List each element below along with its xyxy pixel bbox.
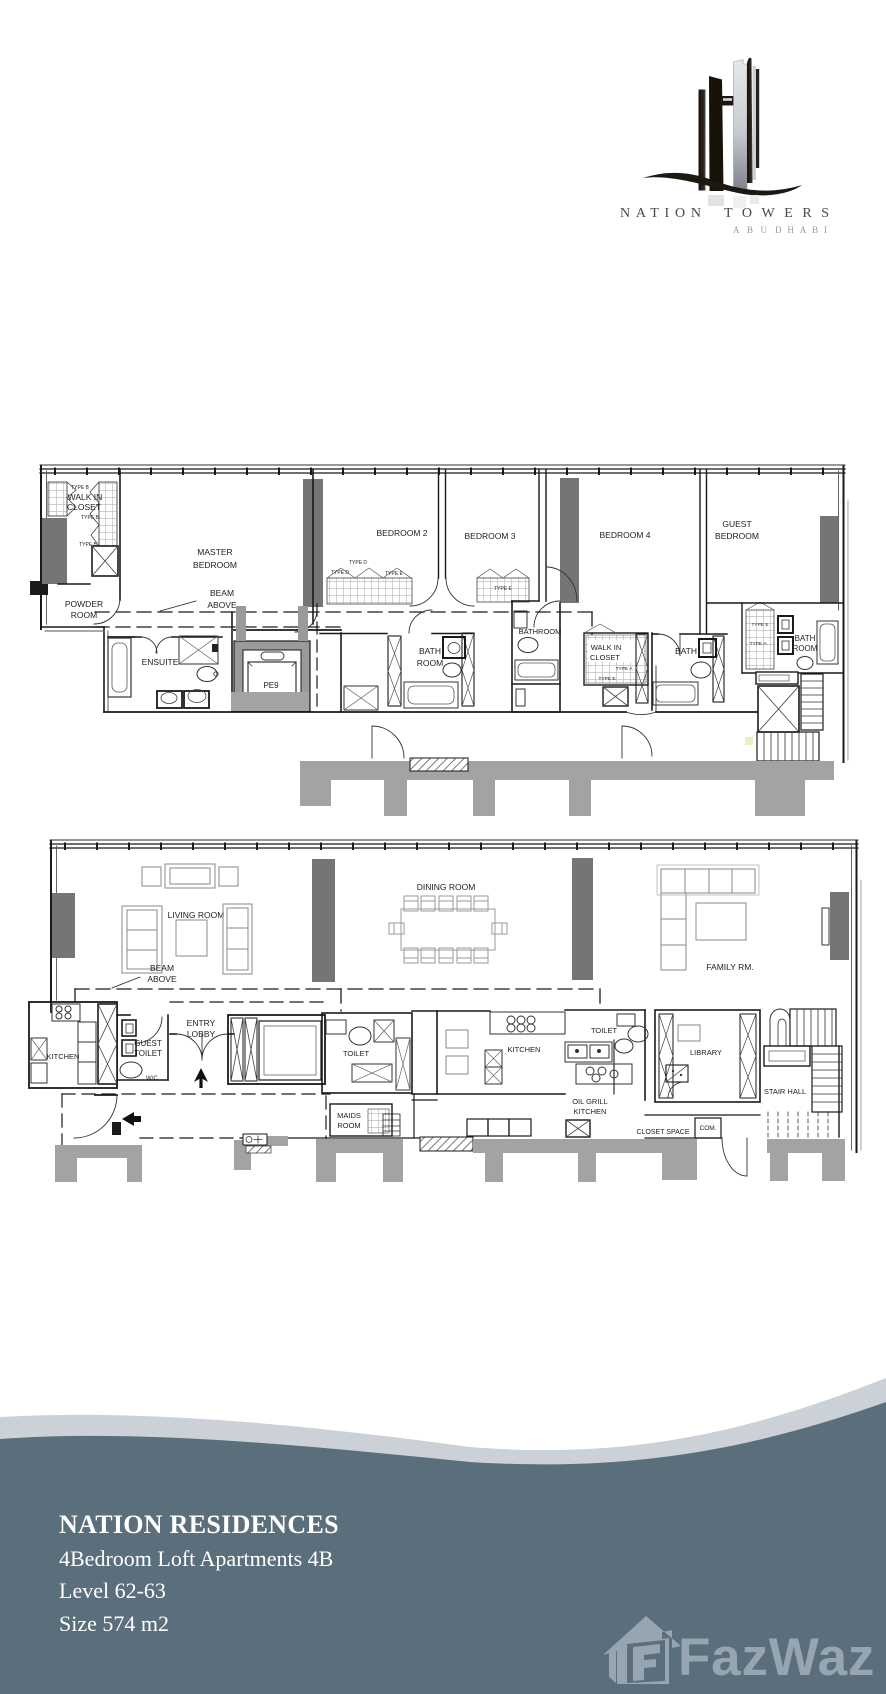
svg-text:KITCHEN: KITCHEN bbox=[508, 1045, 541, 1054]
svg-text:TYPE E: TYPE E bbox=[494, 586, 512, 592]
svg-text:ENTRY: ENTRY bbox=[187, 1018, 216, 1028]
svg-text:WALK IN: WALK IN bbox=[591, 643, 622, 652]
svg-text:ROOM: ROOM bbox=[793, 644, 818, 653]
svg-text:TOILET: TOILET bbox=[591, 1026, 618, 1035]
svg-text:BEAM: BEAM bbox=[210, 588, 234, 598]
svg-text:OIL GRILL: OIL GRILL bbox=[572, 1097, 608, 1106]
svg-text:CLOSET: CLOSET bbox=[590, 653, 620, 662]
svg-text:LOBBY: LOBBY bbox=[187, 1029, 216, 1039]
svg-text:TYPE D: TYPE D bbox=[349, 560, 367, 566]
svg-text:4Bedroom Loft Apartments 4B: 4Bedroom Loft Apartments 4B bbox=[59, 1546, 333, 1571]
svg-text:BEDROOM: BEDROOM bbox=[715, 531, 759, 541]
svg-text:KITCHEN: KITCHEN bbox=[47, 1052, 80, 1061]
svg-text:BEDROOM 4: BEDROOM 4 bbox=[599, 530, 650, 540]
svg-text:TOILET: TOILET bbox=[343, 1049, 370, 1058]
svg-text:KITCHEN: KITCHEN bbox=[574, 1107, 607, 1116]
svg-text:MAIDS: MAIDS bbox=[337, 1111, 361, 1120]
svg-text:TYPE E: TYPE E bbox=[385, 571, 403, 577]
svg-text:BEDROOM 2: BEDROOM 2 bbox=[376, 528, 427, 538]
svg-text:NATION RESIDENCES: NATION RESIDENCES bbox=[59, 1510, 339, 1539]
svg-text:TYPE A: TYPE A bbox=[616, 666, 634, 672]
svg-text:FAMILY RM.: FAMILY RM. bbox=[706, 962, 753, 972]
svg-text:DINING ROOM: DINING ROOM bbox=[417, 882, 476, 892]
svg-text:BEDROOM 3: BEDROOM 3 bbox=[464, 531, 515, 541]
svg-text:ABU: ABU bbox=[733, 225, 768, 235]
svg-text:ROOM: ROOM bbox=[71, 610, 97, 620]
svg-text:COM.: COM. bbox=[700, 1125, 717, 1132]
svg-text:LIVING ROOM: LIVING ROOM bbox=[168, 910, 225, 920]
svg-text:BATH: BATH bbox=[795, 634, 816, 643]
svg-text:TOILET: TOILET bbox=[134, 1049, 162, 1058]
svg-text:STAIR HALL: STAIR HALL bbox=[764, 1087, 806, 1096]
svg-text:GUEST: GUEST bbox=[722, 519, 751, 529]
svg-text:BEAM: BEAM bbox=[150, 963, 174, 973]
svg-text:TYPE E: TYPE E bbox=[598, 676, 615, 682]
svg-text:BATH: BATH bbox=[675, 646, 697, 656]
svg-text:W/C: W/C bbox=[146, 1076, 158, 1082]
svg-text:ABOVE: ABOVE bbox=[207, 600, 237, 610]
svg-text:Size 574 m2: Size 574 m2 bbox=[59, 1611, 169, 1636]
svg-text:ROOM: ROOM bbox=[337, 1121, 360, 1130]
svg-text:BATH: BATH bbox=[419, 646, 441, 656]
svg-text:MASTER: MASTER bbox=[197, 547, 232, 557]
svg-text:TYPE E: TYPE E bbox=[751, 622, 768, 628]
svg-text:FazWaz: FazWaz bbox=[678, 1628, 875, 1687]
svg-text:Level 62-63: Level 62-63 bbox=[59, 1578, 166, 1603]
svg-text:ENSUITE: ENSUITE bbox=[142, 657, 179, 667]
svg-text:POWDER: POWDER bbox=[65, 599, 103, 609]
svg-text:TYPE A: TYPE A bbox=[750, 641, 768, 647]
svg-text:PE9: PE9 bbox=[263, 681, 279, 690]
svg-text:TYPE B: TYPE B bbox=[81, 515, 99, 521]
svg-text:ROOM: ROOM bbox=[417, 658, 443, 668]
svg-text:ABOVE: ABOVE bbox=[147, 974, 177, 984]
svg-text:BEDROOM: BEDROOM bbox=[193, 560, 237, 570]
svg-text:CLOSET: CLOSET bbox=[67, 502, 101, 512]
svg-text:TYPE B: TYPE B bbox=[71, 485, 89, 491]
svg-text:TYPE D: TYPE D bbox=[331, 570, 349, 576]
svg-text:CLOSET SPACE: CLOSET SPACE bbox=[636, 1129, 689, 1136]
svg-text:WALK IN: WALK IN bbox=[68, 492, 103, 502]
svg-text:LIBRARY: LIBRARY bbox=[690, 1048, 722, 1057]
